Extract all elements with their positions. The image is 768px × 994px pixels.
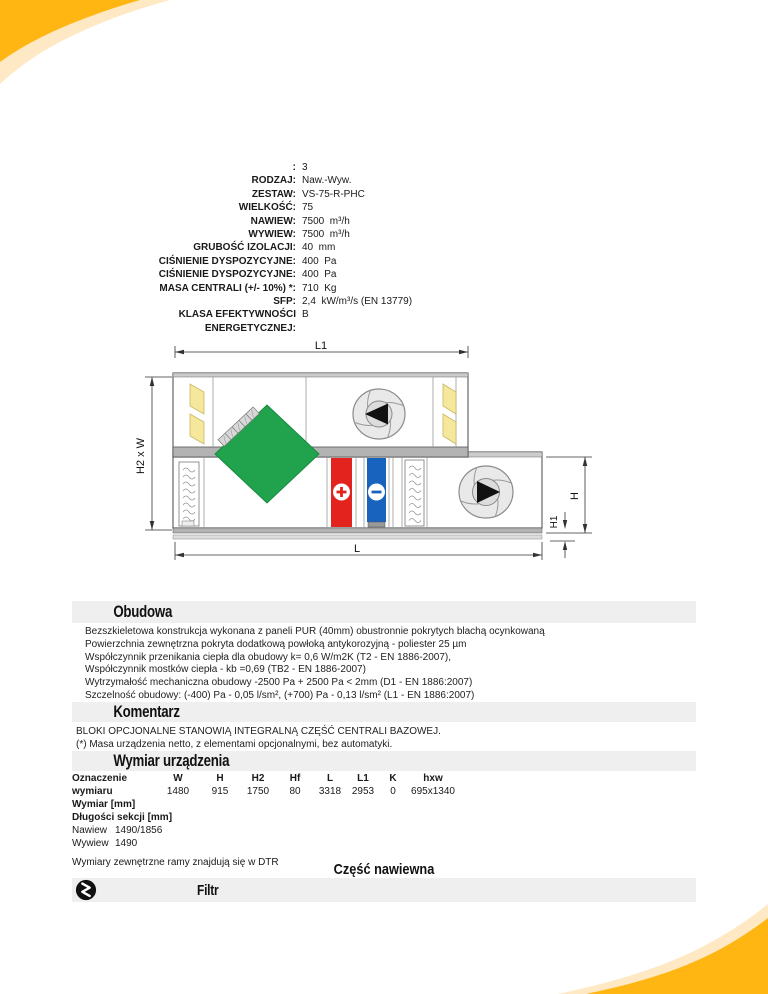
obudowa-text: Bezszkieletowa konstrukcja wykonana z pa… (85, 626, 545, 703)
spec-value: 400 Pa (296, 256, 336, 267)
section-title-obudowa: Obudowa (72, 601, 172, 623)
table-col-header: Hf (290, 773, 301, 784)
obudowa-line: Wytrzymałość mechaniczna obudowy -2500 P… (85, 677, 545, 690)
dim-label-h2xw: H2 x W (135, 437, 147, 474)
table-row-label: wymiaru (72, 786, 113, 797)
spec-row: CIŚNIENIE DYSPOZYCYJNE:400 Pa (40, 268, 412, 281)
base-frame (173, 528, 542, 539)
length-row-value: 1490 (115, 838, 137, 849)
spec-label: ENERGETYCZNEJ: (40, 322, 296, 335)
table-value: 1750 (247, 786, 269, 797)
table-col-header: L (327, 773, 333, 784)
section-bar-wymiar: Wymiar urządzenia (72, 751, 696, 771)
spec-row: ENERGETYCZNEJ: (40, 322, 412, 335)
upper-section-box (173, 373, 468, 457)
dimension-l1: L1 (175, 340, 468, 358)
section-title-komentarz: Komentarz (72, 702, 180, 722)
document-page: :3 RODZAJ:Naw.-Wyw. ZESTAW:VS-75-R-PHC W… (0, 0, 768, 994)
spec-value: 7500 m³/h (296, 229, 350, 240)
komentarz-line: (*) Masa urządzenia netto, z elementami … (76, 738, 441, 751)
obudowa-line: Współczynnik przenikania ciepła dla obud… (85, 652, 545, 665)
spec-label: WYWIEW: (40, 228, 296, 241)
spec-row: GRUBOŚĆ IZOLACJI:40 mm (40, 241, 412, 254)
dimension-h1: H1 (549, 512, 575, 558)
spec-row: KLASA EFEKTYWNOŚCIB (40, 308, 412, 321)
section-bar-obudowa: Obudowa (72, 601, 696, 623)
spec-label: ZESTAW: (40, 188, 296, 201)
spec-row: WIELKOŚĆ:75 (40, 201, 412, 214)
spec-row: SFP:2,4 kW/m³/s (EN 13779) (40, 295, 412, 308)
komentarz-line: BLOKI OPCJONALNE STANOWIĄ INTEGRALNĄ CZĘ… (76, 725, 441, 738)
spec-list: :3 RODZAJ:Naw.-Wyw. ZESTAW:VS-75-R-PHC W… (40, 161, 412, 335)
table-value: 0 (390, 786, 396, 797)
length-row-value: 1490/1856 (115, 825, 162, 836)
spec-row: :3 (40, 161, 412, 174)
table-value: 3318 (319, 786, 341, 797)
spec-label: MASA CENTRALI (+/- 10%) *: (40, 282, 296, 295)
top-left-swoosh-decoration (0, 0, 200, 100)
wavy-panel-right (405, 460, 424, 526)
exhaust-fan-icon (353, 389, 405, 439)
table-row-label: Oznaczenie (72, 773, 127, 784)
table-value: 915 (212, 786, 229, 797)
spec-row: NAWIEW:7500 m³/h (40, 215, 412, 228)
dim-label-l1: L1 (315, 340, 327, 352)
dim-label-h1: H1 (549, 515, 560, 528)
spec-value: 7500 m³/h (296, 216, 350, 227)
cooler-minus-icon (367, 458, 386, 527)
table-value: 80 (289, 786, 300, 797)
spec-value: B (296, 309, 309, 320)
filter-icon (75, 879, 97, 901)
obudowa-line: Współczynnik mostków ciepła - kb =0,69 (… (85, 664, 545, 677)
table-value: 1480 (167, 786, 189, 797)
ahu-diagram: L1 H2 x W L H (125, 338, 610, 588)
table-col-header: W (173, 773, 182, 784)
dimension-l: L (175, 542, 542, 560)
spec-label: GRUBOŚĆ IZOLACJI: (40, 241, 296, 254)
spec-row: ZESTAW:VS-75-R-PHC (40, 188, 412, 201)
spec-label: KLASA EFEKTYWNOŚCI (40, 308, 296, 321)
spec-row: MASA CENTRALI (+/- 10%) *:710 Kg (40, 282, 412, 295)
section-title-wymiar: Wymiar urządzenia (72, 751, 229, 771)
spec-value: 400 Pa (296, 269, 336, 280)
spec-label: WIELKOŚĆ: (40, 201, 296, 214)
spec-label: CIŚNIENIE DYSPOZYCYJNE: (40, 268, 296, 281)
spec-label: : (40, 161, 296, 174)
spec-value: 75 (296, 202, 313, 213)
spec-value: Naw.-Wyw. (296, 175, 351, 186)
obudowa-line: Bezszkieletowa konstrukcja wykonana z pa… (85, 626, 545, 639)
section-bar-komentarz: Komentarz (72, 702, 696, 722)
obudowa-line: Powierzchnia zewnętrzna pokryta dodatkow… (85, 639, 545, 652)
spec-value: 3 (296, 162, 308, 173)
spec-value (296, 323, 302, 334)
table-col-header: H (216, 773, 223, 784)
length-row-label: Wywiew (72, 838, 109, 849)
table-value: 2953 (352, 786, 374, 797)
spec-row: CIŚNIENIE DYSPOZYCYJNE:400 Pa (40, 255, 412, 268)
table-row-label: Wymiar [mm] (72, 799, 135, 810)
komentarz-text: BLOKI OPCJONALNE STANOWIĄ INTEGRALNĄ CZĘ… (76, 725, 441, 751)
obudowa-line: Szczelność obudowy: (-400) Pa - 0,05 l/s… (85, 690, 545, 703)
spec-row: WYWIEW:7500 m³/h (40, 228, 412, 241)
spec-label: CIŚNIENIE DYSPOZYCYJNE: (40, 255, 296, 268)
dim-label-l: L (354, 543, 360, 555)
spec-label: SFP: (40, 295, 296, 308)
spec-value: 710 Kg (296, 283, 336, 294)
table-value: 695x1340 (411, 786, 455, 797)
dimension-h2xw: H2 x W (135, 377, 172, 530)
section-bar-filtr: Filtr (72, 878, 696, 902)
spec-row: RODZAJ:Naw.-Wyw. (40, 174, 412, 187)
table-col-header: L1 (357, 773, 369, 784)
czesc-nawiewna-title: Część nawiewna (119, 861, 649, 878)
spec-value: 40 mm (296, 242, 335, 253)
heater-plus-icon (331, 458, 352, 527)
dim-label-h: H (569, 492, 581, 500)
spec-label: NAWIEW: (40, 215, 296, 228)
section-title-filtr: Filtr (197, 882, 218, 899)
table-col-header: hxw (423, 773, 442, 784)
length-row-label: Nawiew (72, 825, 107, 836)
supply-fan-icon (459, 466, 513, 518)
table-col-header: H2 (252, 773, 265, 784)
spec-label: RODZAJ: (40, 174, 296, 187)
wavy-panel-left (179, 462, 199, 526)
lengths-title: Długości sekcji [mm] (72, 812, 172, 823)
table-col-header: K (389, 773, 396, 784)
spec-value: 2,4 kW/m³/s (EN 13779) (296, 296, 412, 307)
spec-value: VS-75-R-PHC (296, 189, 365, 200)
